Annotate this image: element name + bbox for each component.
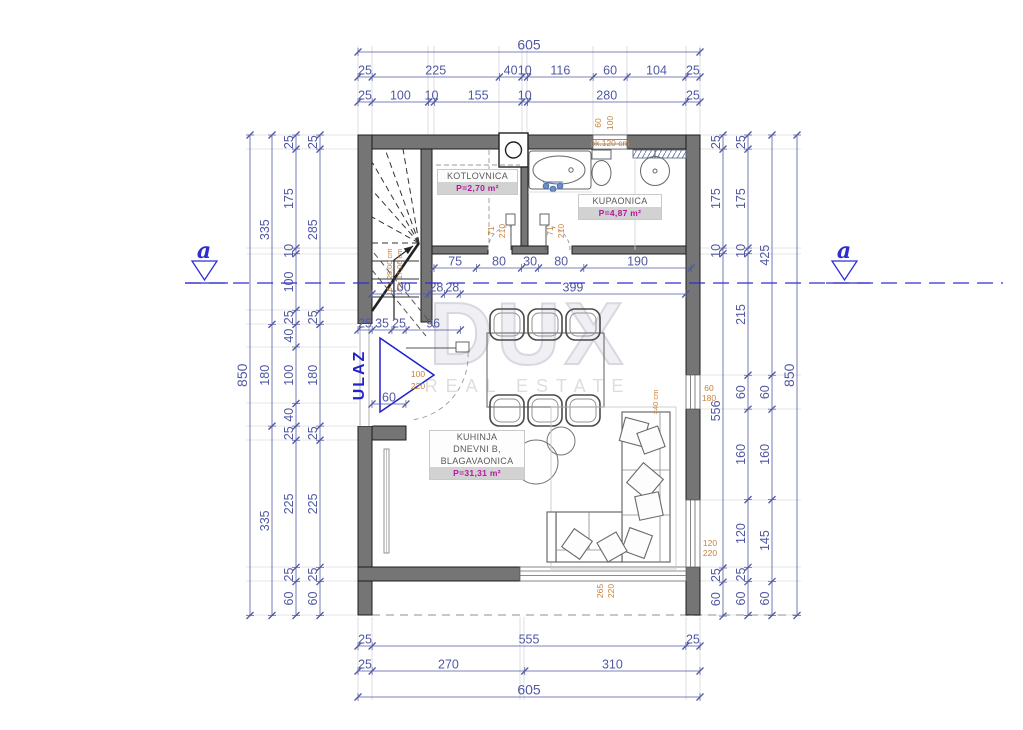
dining-set [487, 309, 604, 426]
window-right-60 [686, 375, 700, 409]
dim-label: 180 [258, 365, 272, 386]
dim-label: 335 [258, 510, 272, 531]
annotation-window-right2-width: 120 [703, 538, 717, 548]
annotation-window-bottom-width: 265 [595, 584, 605, 598]
section-marker-left-label: a [197, 238, 211, 264]
dim-label: 60 [603, 64, 617, 78]
dim-label: 555 [519, 633, 540, 647]
annotation-door-kupaonica-height: 210 [556, 224, 566, 238]
dim-label: 155 [468, 89, 489, 103]
dim-label: 25 [358, 317, 372, 331]
dim-label: 280 [596, 89, 617, 103]
dim-chain-bottom-total: 605 [355, 682, 704, 702]
dim-label: 75 [448, 255, 462, 269]
dim-label: 310 [602, 658, 623, 672]
annotation-window-right2-height: 220 [703, 548, 717, 558]
dim-chain-left-4: 2528525180252252560 [306, 132, 324, 620]
dim-label: 25 [686, 633, 700, 647]
dim-label: 850 [234, 363, 250, 387]
dim-label: 100 [282, 365, 296, 386]
dim-label: 225 [282, 493, 296, 514]
dim-label: 605 [517, 682, 541, 698]
room-area: P=2,70 m² [438, 182, 517, 194]
dim-chain-top-total: 605 [355, 37, 704, 57]
dim-label: 25 [686, 64, 700, 78]
room-name-line2: DNEVNI B, [430, 443, 524, 455]
dim-chain-left-total: 850 [234, 132, 254, 620]
dim-label: 60 [382, 391, 396, 405]
wall-entry-stub [372, 426, 406, 440]
dim-label: 25 [358, 64, 372, 78]
towel-radiator [633, 150, 686, 158]
dining-table [487, 333, 604, 407]
dim-label: 25 [686, 89, 700, 103]
dim-label: 270 [438, 658, 459, 672]
wall-right-middle [686, 409, 700, 500]
dim-label: 40 [282, 408, 296, 422]
dim-label: 175 [709, 188, 723, 209]
dim-label: 60 [758, 385, 772, 399]
dim-label: 25 [709, 135, 723, 149]
dim-label: 40 [282, 329, 296, 343]
entry-label: ULAZ [351, 350, 368, 401]
dim-label: 60 [306, 592, 320, 606]
dim-label: 556 [709, 400, 723, 421]
wall-hall-segment-2 [512, 246, 548, 254]
annotation-entry-door-height: 220 [411, 381, 425, 391]
dim-label: 60 [282, 592, 296, 606]
dim-label: 175 [734, 188, 748, 209]
dim-label: 180 [306, 365, 320, 386]
dim-label: 160 [734, 444, 748, 465]
annotation-stair-step-line1: 16 x 28,00 cm [385, 248, 394, 295]
room-area: P=4,87 m² [579, 207, 661, 219]
dim-label: 225 [306, 493, 320, 514]
dim-label: 215 [734, 304, 748, 325]
dim-label: 25 [306, 426, 320, 440]
dim-label: 145 [758, 530, 772, 551]
section-line: a a [185, 238, 1003, 283]
dim-label: 60 [734, 592, 748, 606]
dim-label: 100 [282, 272, 296, 293]
wall-right-lower [686, 567, 700, 615]
dining-chairs [490, 309, 600, 426]
dim-label: 120 [734, 523, 748, 544]
chimney [499, 133, 528, 167]
dim-label: 190 [627, 255, 648, 269]
room-name-line3: BLAGAVAONICA [430, 455, 524, 467]
dim-label: 104 [646, 64, 667, 78]
dim-chain-left-2: 335180335 [258, 132, 276, 620]
dim-chain-bottom-row1: 2555525 [355, 633, 704, 651]
dim-label: 100 [390, 89, 411, 103]
dim-label: 116 [550, 64, 570, 78]
dim-label: 25 [734, 568, 748, 582]
wall-hall-segment-3 [572, 246, 686, 254]
wall-left-lower [358, 426, 372, 615]
section-marker-right-label: a [837, 238, 851, 264]
dim-label: 60 [709, 592, 723, 606]
room-label-kotlovnica: KOTLOVNICA P=2,70 m² [437, 169, 518, 195]
dim-label: 160 [758, 444, 772, 465]
dim-label: 25 [358, 89, 372, 103]
annotation-entry-door-width: 100 [411, 369, 425, 379]
dim-label: 25 [282, 135, 296, 149]
wall-right-upper [686, 135, 700, 375]
dim-label: 605 [517, 37, 541, 53]
toilet [592, 150, 611, 186]
dim-label: 285 [306, 219, 320, 240]
dim-label: 850 [781, 363, 797, 387]
wall-top [358, 135, 700, 149]
dim-label: 25 [306, 568, 320, 582]
room-label-kupaonica: KUPAONICA P=4,87 m² [578, 194, 662, 220]
dim-chain-top-row3: 25100101551028025 [355, 89, 704, 107]
dim-label: 25 [358, 633, 372, 647]
room-name-line1: KUHINJA [430, 431, 524, 443]
annotation-toilet-note: pk.120 cm [590, 138, 629, 148]
chimney-flue-icon [506, 142, 522, 158]
dim-label: 25 [709, 568, 723, 582]
dim-label: 25 [734, 135, 748, 149]
dim-label: 335 [258, 219, 272, 240]
dim-label: 60 [758, 592, 772, 606]
dim-chain-top-row2: 2522540101166010425 [355, 64, 704, 82]
floor-plan-drawing: ULAZ 60525225401011660104252510010155102… [0, 0, 1023, 730]
dim-label: 425 [758, 245, 772, 266]
dim-label: 96 [426, 317, 440, 331]
annotation-door-kotlovnica-width: 71 [486, 226, 496, 236]
dim-label: 80 [554, 255, 568, 269]
dim-label: 25 [392, 317, 406, 331]
annotation-door-kotlovnica-height: 210 [497, 224, 507, 238]
dim-label: 35 [375, 317, 389, 331]
room-label-kuhinja: KUHINJA DNEVNI B, BLAGAVAONICA P=31,31 m… [429, 430, 525, 480]
dim-label: 40 [504, 64, 518, 78]
room-area: P=31,31 m² [430, 467, 524, 479]
dim-label: 25 [358, 658, 372, 672]
sofa [547, 407, 676, 569]
sofa-pillows [562, 417, 665, 562]
annotation-stair-step-line2: 17 x 17,06 cm [395, 248, 404, 295]
window-right-120 [686, 500, 700, 567]
dim-label: 175 [282, 188, 296, 209]
room-name: KUPAONICA [579, 195, 661, 207]
wall-hall-segment-1 [432, 246, 488, 254]
floor-plan-canvas: DUX REAL ESTATE [0, 0, 1023, 730]
dim-chain-bottom-row2: 25270310 [355, 658, 704, 676]
annotation-window-bottom-height: 220 [606, 584, 616, 598]
dim-chain-left-3: 2517510100254010040252252560 [282, 132, 300, 620]
annotation-parapet-note: =40 cm [651, 390, 660, 415]
dim-label: 30 [523, 255, 537, 269]
dim-label: 25 [282, 426, 296, 440]
annotation-window-right1-height: 180 [702, 393, 716, 403]
dim-label: 25 [282, 310, 296, 324]
dim-label: 25 [282, 568, 296, 582]
dim-chain-entry-top: 25352596 [355, 317, 464, 335]
dim-label: 25 [306, 310, 320, 324]
annotation-window-top-width: 60 [593, 118, 603, 128]
room-name: KOTLOVNICA [438, 170, 517, 182]
wall-bottom [358, 567, 520, 581]
annotation-window-right1-width: 60 [704, 383, 714, 393]
dim-label: 80 [492, 255, 506, 269]
annotation-window-top-height: 100 [605, 116, 615, 130]
dim-label: 60 [734, 385, 748, 399]
dim-chain-mid-upper: 75803080190 [431, 255, 695, 273]
annotation-door-kupaonica-width: 71 [545, 226, 555, 236]
dim-label: 225 [425, 64, 446, 78]
dim-label: 25 [306, 135, 320, 149]
